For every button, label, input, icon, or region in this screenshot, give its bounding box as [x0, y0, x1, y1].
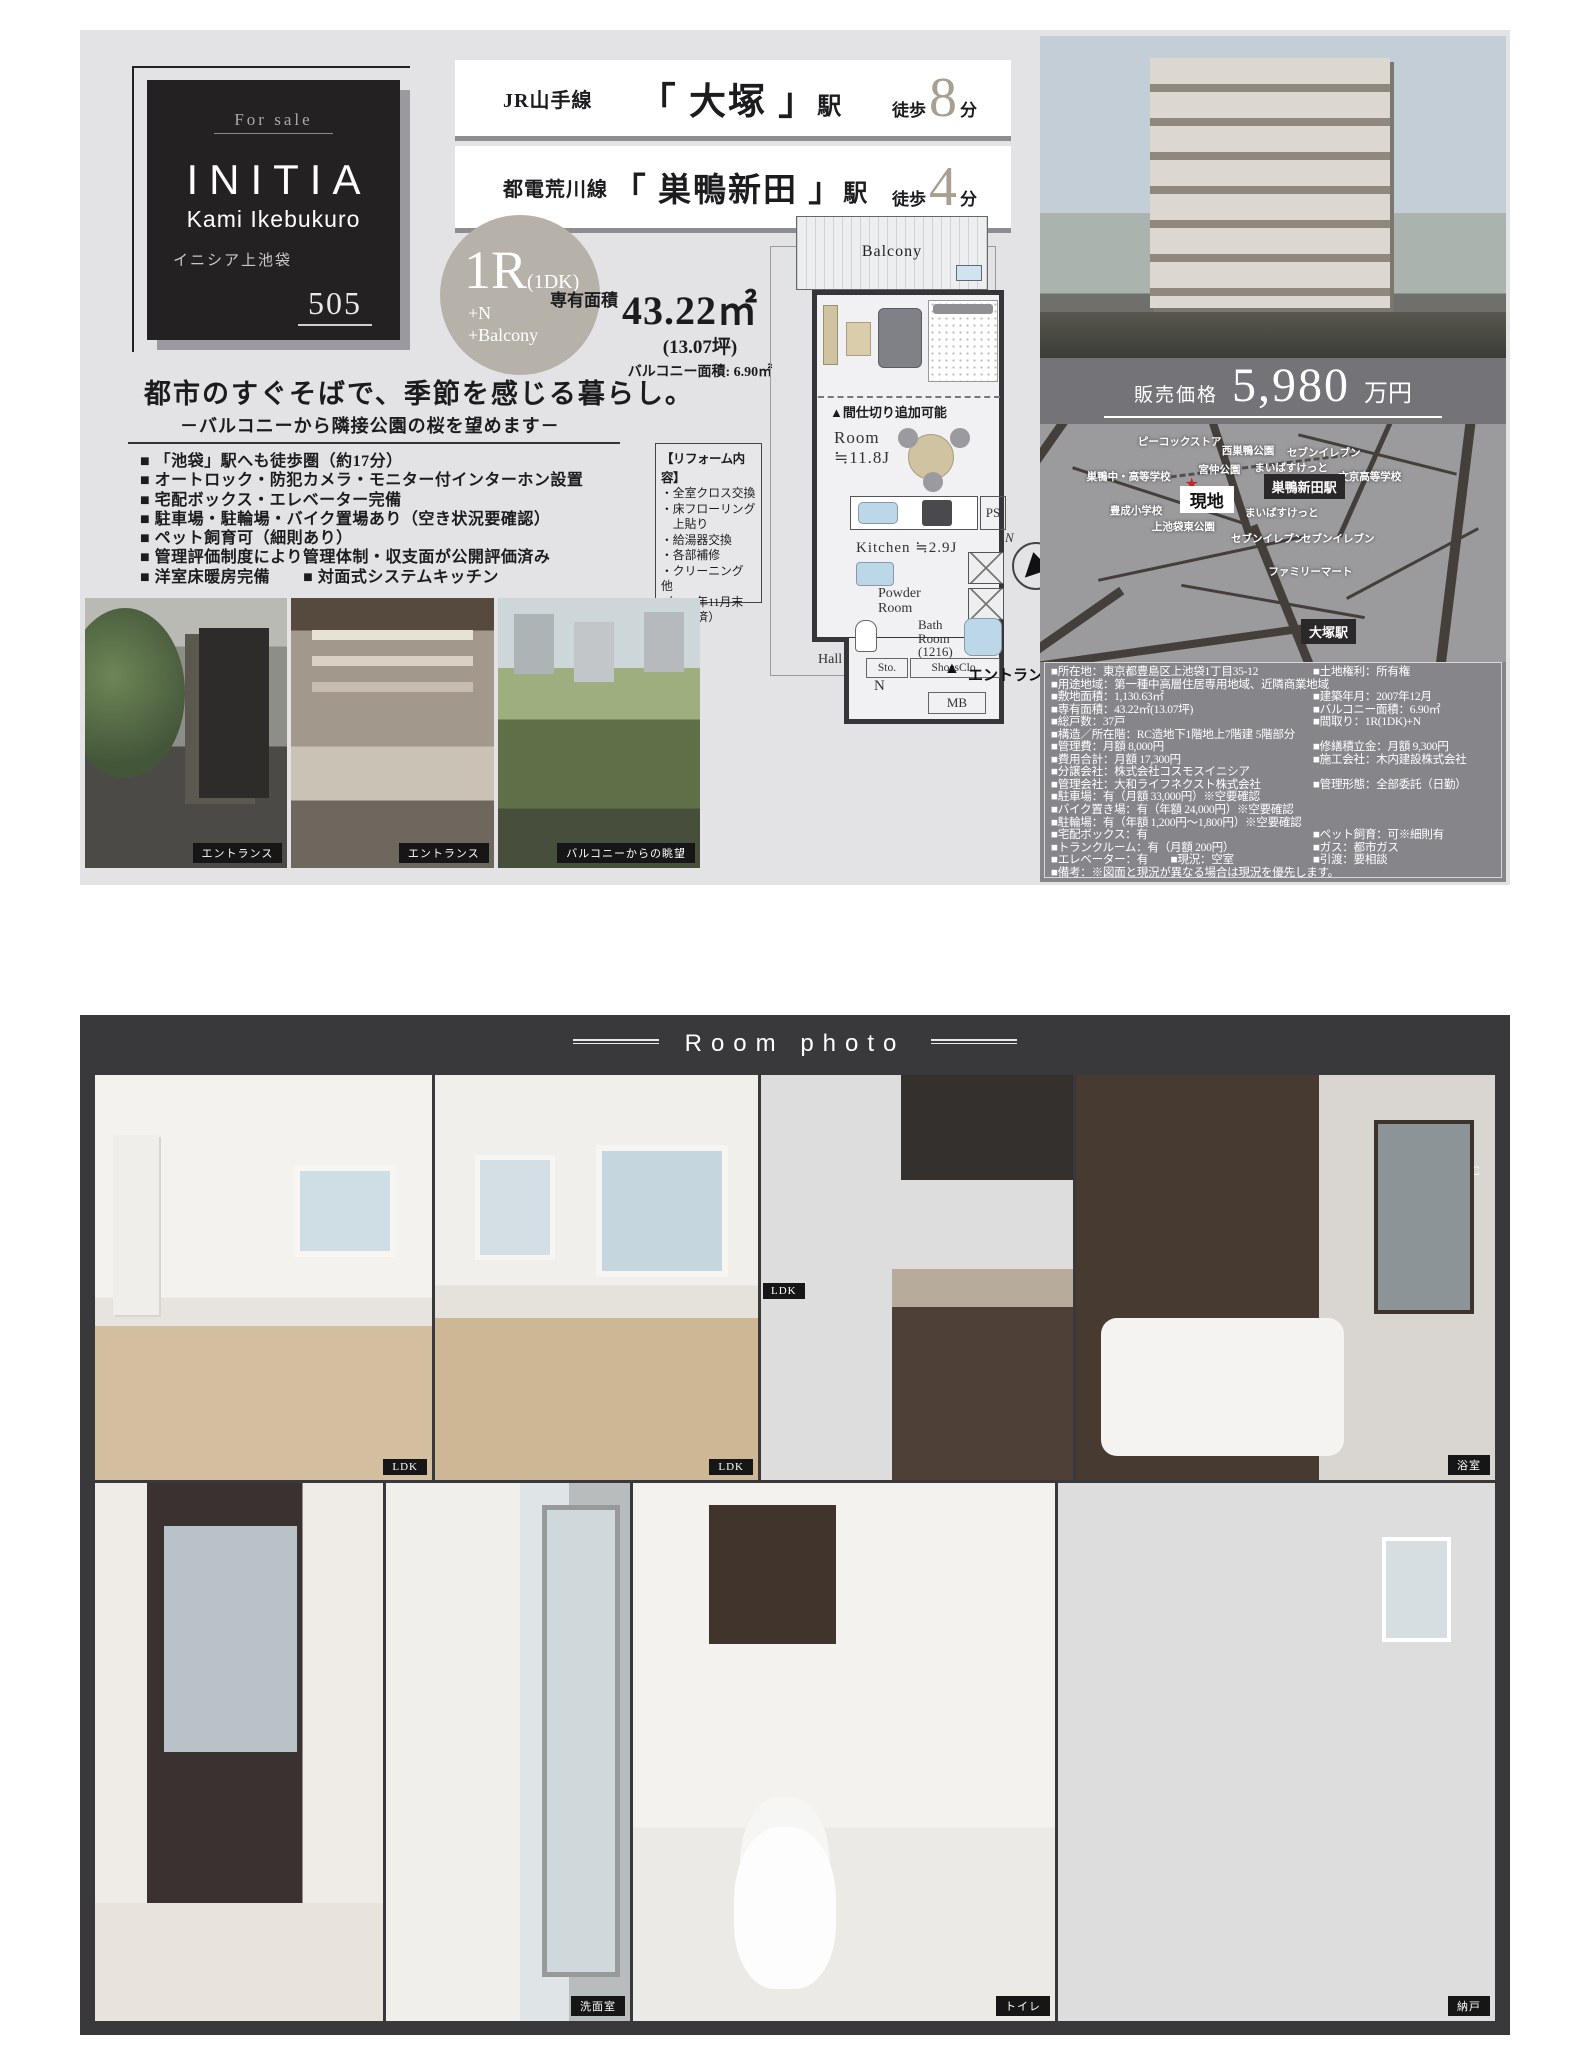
map-label: セブンイレブン	[1231, 531, 1305, 546]
detail-cell: ■駐輪場：有（年額 1,200円～1,800円）※空要確認	[1051, 816, 1301, 829]
bathroom-photo: WIC 浴室	[1076, 1075, 1495, 1480]
map-label: ファミリーマート	[1268, 564, 1352, 579]
detail-cell: ■エレベーター：有 ■現況：空室	[1051, 853, 1234, 866]
bed-icon	[928, 300, 998, 382]
map-label: 上池袋東公園	[1152, 519, 1215, 534]
detail-cell: ■ペット飼育：可※細則有	[1313, 829, 1444, 842]
chair-icon	[950, 428, 970, 448]
map-label: 西巣鴨公園	[1222, 443, 1275, 458]
chair-icon	[923, 472, 943, 492]
feature-item: ■ 洋室床暖房完備 ■ 対面式システムキッチン	[140, 568, 583, 587]
price-unit: 万円	[1364, 373, 1412, 408]
divider-line	[128, 442, 620, 444]
stove-icon	[922, 500, 952, 526]
photo-caption: トイレ	[996, 1996, 1050, 2016]
photo-caption: LDK	[709, 1459, 753, 1475]
photo-caption: 洗面室	[324, 1996, 378, 2016]
washroom-photo: 洗面室	[95, 1483, 383, 2021]
map-station-label: 大塚駅	[1301, 619, 1356, 644]
header-rule-right	[931, 1043, 1017, 1045]
detail-cell: ■分譲会社：株式会社コスモスイニシア	[1051, 765, 1250, 778]
photo-caption: エントランス	[193, 843, 283, 863]
sideboard-icon	[823, 305, 838, 365]
walk-time: 徒歩8分	[841, 70, 1011, 126]
sofa-icon	[878, 308, 922, 368]
map-label: 宮仲公園	[1198, 462, 1240, 477]
feature-list: ■ 「池袋」駅へも徒歩圏（約17分） ■ オートロック・防犯カメラ・モニター付イ…	[140, 452, 583, 587]
balcony-view-photo: バルコニーからの眺望	[498, 598, 700, 868]
detail-cell: ■敷地面積：1,130.63㎡	[1051, 690, 1164, 703]
detail-cell: ■管理費：月額 8,000円	[1051, 740, 1164, 753]
price-amount: 5,980	[1232, 362, 1350, 410]
shaft-icon	[968, 552, 1004, 584]
room-photo-section: Room photo LDK LDK LDK キッチン WIC 浴室	[80, 1015, 1510, 2035]
access-row-otsuka: JR山手線 「 大塚 」駅 徒歩8分	[455, 60, 1011, 136]
room-photo-header: Room photo	[80, 1015, 1510, 1073]
catchphrase-sub: －バルコニーから隣接公園の桜を望めます－	[180, 412, 560, 438]
toilet-icon	[855, 620, 877, 652]
feature-item: ■ 「池袋」駅へも徒歩圏（約17分）	[140, 452, 583, 471]
property-name-jp: イニシア上池袋	[147, 249, 400, 270]
partition-note: ▲間仕切り追加可能	[830, 402, 947, 421]
detail-cell: ■駐車場：有（月額 33,000円）※空要確認	[1051, 790, 1260, 803]
kitchen-photo: LDK キッチン	[761, 1075, 1073, 1480]
feature-item: ■ 駐車場・駐輪場・バイク置場あり（空き状況要確認）	[140, 510, 583, 529]
map-label: 巣鴨中・高等学校	[1087, 469, 1171, 484]
toilet-photo: トイレ	[633, 1483, 1055, 2021]
map-label: 文京高等学校	[1338, 469, 1401, 484]
map-road	[1040, 424, 1071, 537]
flyer-page: For sale INITIA Kami Ikebukuro イニシア上池袋 5…	[0, 0, 1589, 2056]
for-sale-label: For sale	[214, 110, 332, 134]
detail-cell: ■管理形態：全部委託（日勤）	[1313, 779, 1467, 792]
rail-line-label: JR山手線	[455, 84, 639, 113]
detail-cell: ■備考：※図面と現況が異なる場合は現況を優先します。	[1051, 866, 1339, 879]
photo-caption: 洗面室	[571, 1996, 625, 2016]
entrance-triangle-icon: ▲	[944, 660, 960, 678]
room-photo-title: Room photo	[685, 1030, 906, 1058]
header-rule-left	[573, 1043, 659, 1045]
map-road	[1040, 624, 1309, 662]
photo-caption: 浴室	[1448, 1455, 1490, 1475]
map-label: 豊成小学校	[1110, 503, 1163, 518]
map-label: まいばすけっと	[1245, 505, 1319, 520]
n-room-label: N	[874, 678, 885, 695]
flyer-top-section: For sale INITIA Kami Ikebukuro イニシア上池袋 5…	[80, 30, 1510, 885]
bathtub-icon	[964, 618, 1002, 656]
detail-cell: ■費用合計：月額 17,300円	[1051, 753, 1181, 766]
detail-cell: ■バイク置き場：有（年額 24,000円）※空要確認	[1051, 803, 1293, 816]
feature-item: ■ ペット飼育可（細則あり）	[140, 529, 583, 548]
feature-item: ■ オートロック・防犯カメラ・モニター付インターホン設置	[140, 471, 583, 490]
meter-box-label: MB	[928, 692, 986, 714]
price-block: 販売価格 5,980 万円	[1040, 358, 1506, 424]
station-name: 「 大塚 」駅	[639, 71, 842, 125]
unit-number: 505	[298, 285, 372, 326]
kitchen-label: Kitchen ≒2.9J	[856, 538, 957, 557]
map-station-label: 巣鴨新田駅	[1264, 474, 1345, 499]
detail-cell: ■用途地域：第一種中高層住居専用地域、近隣商業地域	[1051, 678, 1329, 691]
photo-caption: 納戸	[1448, 1996, 1490, 2016]
feature-item: ■ 管理評価制度により管理体制・収支面が公開評価済み	[140, 548, 583, 567]
storage-room-photo: 納戸	[1058, 1483, 1495, 2021]
detail-cell: ■施工会社：木内建設株式会社	[1313, 754, 1467, 767]
map-label: セブンイレブン	[1301, 531, 1375, 546]
property-details: ■所在地：東京都豊島区上池袋1丁目35-12■土地権利：所有権 ■用途地域：第一…	[1040, 662, 1506, 882]
map-label: まいばすけっと	[1254, 460, 1328, 475]
feature-item: ■ 宅配ボックス・エレベーター完備	[140, 491, 583, 510]
table-icon	[846, 322, 871, 356]
ac-unit-icon	[956, 265, 982, 281]
pipe-space: PS	[980, 496, 1006, 530]
gallery: エントランス エントランス バルコニーからの眺望	[85, 598, 700, 868]
photo-caption: バルコニーからの眺望	[557, 843, 695, 863]
detail-cell: ■宅配ボックス：有	[1051, 828, 1148, 841]
detail-cell: ■トランクルーム：有（月額 200円）	[1051, 841, 1234, 854]
detail-cell: ■所在地：東京都豊島区上池袋1丁目35-12	[1051, 665, 1258, 678]
ldk-inset-tag: LDK	[763, 1283, 805, 1299]
washbasin-icon	[856, 562, 894, 586]
catchphrase: 都市のすぐそばで、季節を感じる暮らし。	[144, 372, 694, 411]
balcony-area: Balcony	[796, 216, 988, 290]
shaft-icon	[968, 588, 1004, 620]
sink-icon	[858, 502, 898, 524]
room-photo-grid: LDK LDK LDK キッチン WIC 浴室 洗面室	[95, 1075, 1495, 2024]
detail-cell: ■構造／所在階：RC造地下1階地上7階建 5階部分	[1051, 728, 1295, 741]
property-name-en: Kami Ikebukuro	[147, 206, 400, 233]
photo-caption: エントランス	[399, 843, 489, 863]
photo-caption: キッチン	[1002, 1455, 1068, 1475]
chair-icon	[898, 428, 918, 448]
exterior-photo: 外観写真	[1040, 36, 1506, 358]
entrance-photo: エントランス	[85, 598, 287, 868]
entrance-photo: エントランス	[291, 598, 493, 868]
wic-label: WIC	[1451, 1163, 1481, 1179]
ldk-photo: LDK	[95, 1075, 432, 1480]
detail-cell: ■間取り：1R(1DK)+N	[1313, 716, 1421, 729]
detail-cell: ■専有面積：43.22㎡(13.07坪)	[1051, 703, 1193, 716]
map-label: ピーコックストア	[1138, 434, 1222, 449]
washroom-photo: 洗面室	[386, 1483, 630, 2021]
right-panel: 外観写真 販売価格 5,980 万円	[1040, 36, 1506, 882]
map-site-label: 現地	[1180, 486, 1234, 513]
map-label: セブンイレブン	[1287, 445, 1361, 460]
detail-cell: ■総戸数：37戸	[1051, 715, 1125, 728]
detail-cell: ■修繕積立金：月額 9,300円	[1313, 741, 1449, 754]
detail-cell: ■建築年月：2007年12月	[1313, 691, 1432, 704]
price-label: 販売価格	[1134, 380, 1218, 407]
brand-name: INITIA	[147, 156, 400, 204]
photo-caption: LDK	[383, 1459, 427, 1475]
reform-box: 【リフォーム内容】 ・全室クロス交換 ・床フローリング 上貼り ・給湯器交換 ・…	[655, 443, 762, 603]
rail-line-label: 都電荒川線	[455, 173, 613, 202]
floor-plan: Balcony ▲間仕切り追加可能 Room ≒11.8J PS Kitch	[760, 200, 1040, 712]
area-map: ★ ピーコックストア 西巣鴨公園 セブンイレブン 巣鴨中・高等学校 宮仲公園 ま…	[1040, 424, 1506, 662]
property-card: For sale INITIA Kami Ikebukuro イニシア上池袋 5…	[147, 80, 400, 340]
partition-dashed-line	[818, 396, 1000, 398]
map-road	[1433, 424, 1476, 662]
ldk-photo: LDK	[435, 1075, 758, 1480]
detail-cell: ■管理会社：大和ライフネクスト株式会社	[1051, 778, 1261, 791]
hall-label: Hall	[818, 652, 842, 668]
storage-label: Sto.	[866, 658, 908, 678]
photo-caption: 外観写真	[1435, 333, 1501, 353]
